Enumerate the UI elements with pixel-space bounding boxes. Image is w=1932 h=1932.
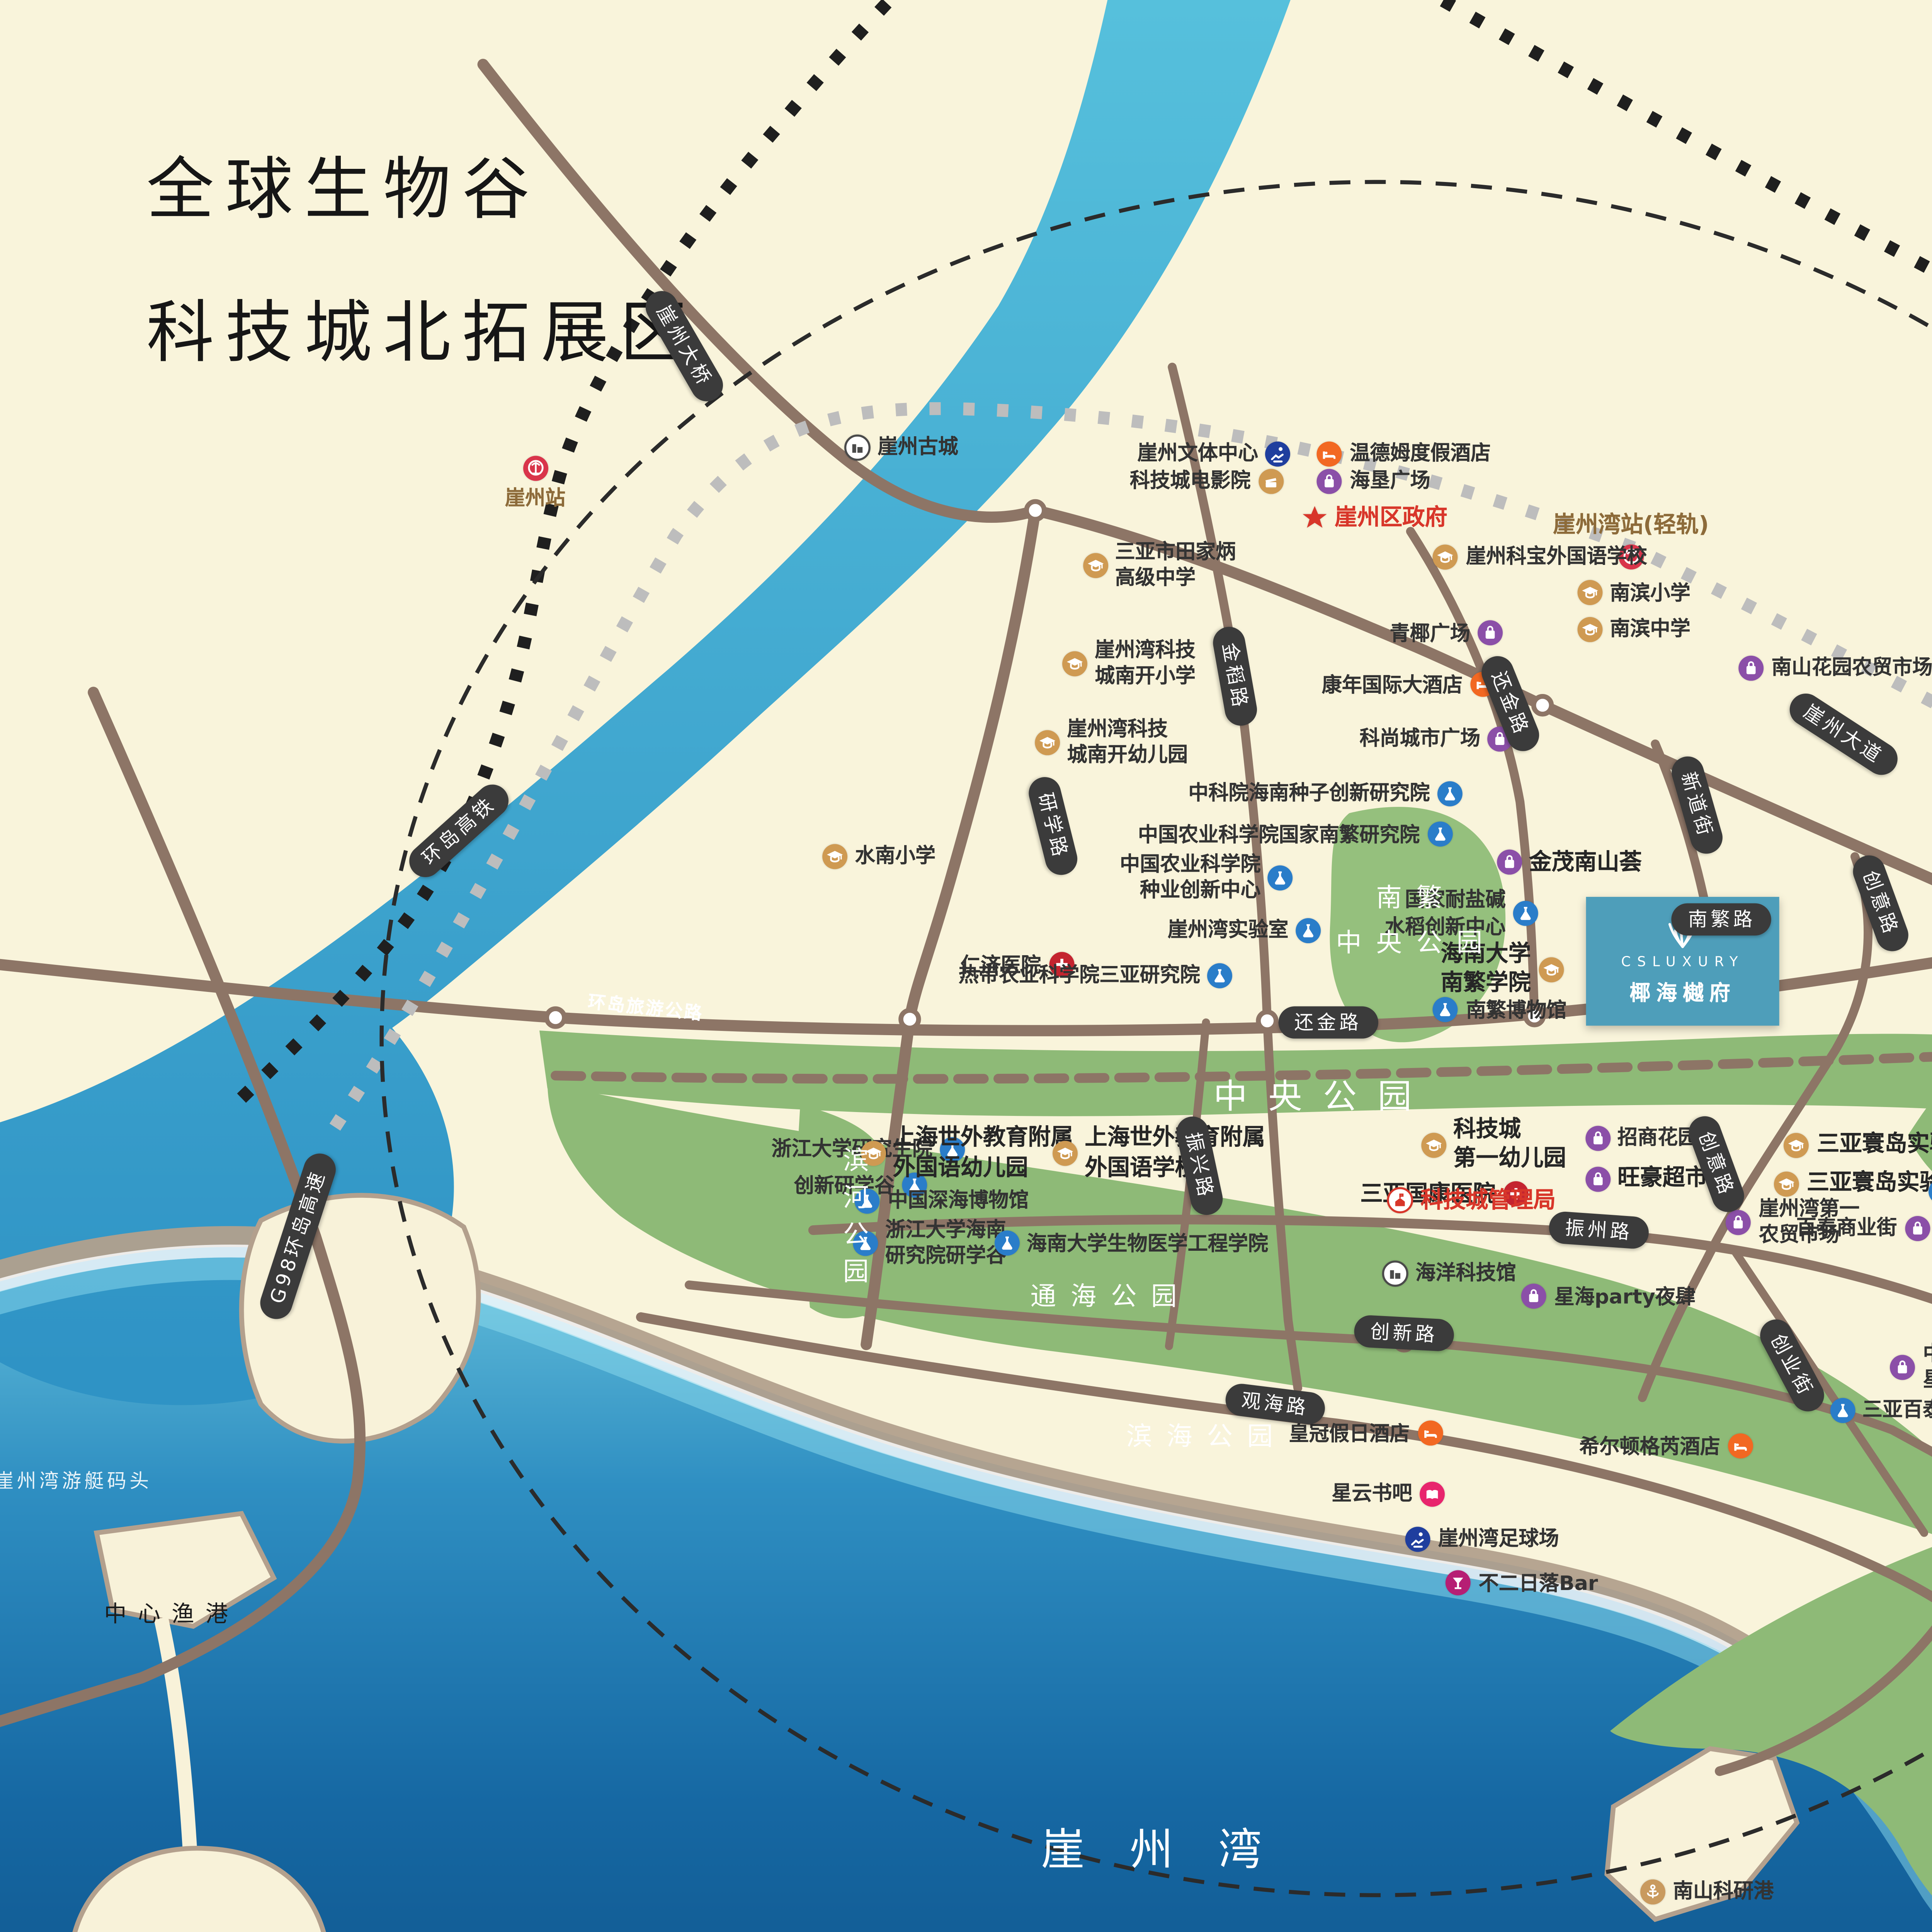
school-icon <box>1576 579 1604 607</box>
film-icon <box>1257 468 1284 495</box>
area-label: 崖州湾游艇码头 <box>0 1464 152 1497</box>
poi-label: 崖州站 <box>505 486 565 512</box>
poi-label: 崖州湾实验室 <box>1168 918 1289 944</box>
landmark-icon <box>1382 1260 1409 1287</box>
school-icon <box>1033 729 1061 756</box>
poi-school: 三亚市田家炳高级中学 <box>1081 539 1236 591</box>
poi-label: 中科院海南种子创新研究院 <box>1188 781 1430 807</box>
poi-sport: 崖州文体中心 <box>1138 440 1292 468</box>
poi-label: 崖州古城 <box>878 434 958 461</box>
poi-landmark: 海洋科技馆 <box>1382 1260 1516 1287</box>
poi-label: 崖州区政府 <box>1335 503 1447 532</box>
bag-icon <box>1738 654 1765 681</box>
poi-bag: 科尚城市广场 <box>1360 724 1514 752</box>
poi-flask: 三亚百泰生物科技有限公司 <box>1828 1396 1932 1424</box>
poi-sport: 崖州湾足球场 <box>1405 1525 1559 1552</box>
poi-school: 南滨中学 <box>1576 616 1690 643</box>
poi-label: 南滨中学 <box>1610 616 1690 642</box>
poi-bag: 中影银龙星悦影城 <box>1889 1341 1932 1393</box>
poi-school: 三亚寰岛实验中学 <box>1783 1130 1932 1160</box>
poi-label: 三亚寰岛实验中学 <box>1817 1130 1932 1160</box>
poi-label: 三亚市田家炳高级中学 <box>1115 539 1236 591</box>
title-line1: 全球生物谷 <box>146 120 699 262</box>
poi-hotel: 希尔顿格芮酒店 <box>1579 1433 1754 1460</box>
poi-hotel: 皇冠假日酒店 <box>1289 1420 1444 1447</box>
poi-bag: 星海party夜肆 <box>1520 1283 1696 1311</box>
poi-hotel: 康年国际大酒店 <box>1322 671 1497 699</box>
poi-label: 水南小学 <box>855 843 935 869</box>
school-icon <box>1576 616 1604 643</box>
poi-school: 崖州湾科技城南开小学 <box>1061 637 1196 689</box>
area-label: 中央公园 <box>1213 1069 1432 1127</box>
school-icon <box>1783 1131 1811 1158</box>
hotel-icon <box>1416 1420 1444 1447</box>
school-icon <box>1773 1170 1801 1197</box>
poi-rail: 崖州站 <box>505 455 565 512</box>
sport-icon <box>1265 440 1292 468</box>
project-brand: CSLUXURY <box>1621 955 1745 971</box>
poi-label: 皇冠假日酒店 <box>1289 1421 1410 1447</box>
poi-label: 康年国际大酒店 <box>1322 672 1463 698</box>
gov-icon <box>1387 1187 1414 1214</box>
poi-school: 水南小学 <box>821 842 935 870</box>
poi-flask: 崖州湾实验室 <box>1168 917 1322 945</box>
poi-label: 崖州湾科技城南开幼儿园 <box>1067 716 1188 769</box>
poi-label: 温德姆度假酒店 <box>1350 440 1491 467</box>
poi-label: 崖州科宝外国语学校 <box>1466 543 1647 570</box>
poi-label: 金茂南山荟 <box>1529 848 1642 877</box>
flask-icon <box>1432 997 1459 1024</box>
poi-label: 百泰商业街 <box>1796 1215 1897 1242</box>
poi-label: 星云书吧 <box>1332 1481 1412 1507</box>
poi-label: 海南大学生物医学工程学院 <box>1027 1230 1268 1257</box>
school-icon <box>1081 551 1109 579</box>
poi-flask: 深海整备产业园 <box>1927 1178 1932 1206</box>
poi-label: 青椰广场 <box>1390 620 1470 646</box>
bag-icon <box>1477 620 1504 647</box>
road-label: 还金路 <box>1278 1007 1378 1039</box>
flask-icon <box>1267 864 1294 891</box>
hotel-icon <box>1316 440 1344 468</box>
poi-label: 崖州湾科技城南开小学 <box>1095 637 1196 689</box>
poi-bag: 金茂南山荟 <box>1495 848 1642 877</box>
poi-label: 科技城管理局 <box>1420 1186 1556 1215</box>
poi-label: 上海世外教育附属外国语幼儿园 <box>893 1124 1073 1183</box>
poi-label: 科技城第一幼儿园 <box>1453 1116 1566 1174</box>
poi-label: 希尔顿格芮酒店 <box>1579 1434 1720 1460</box>
flask-icon <box>1828 1396 1856 1424</box>
area-label: 通海公园 <box>1031 1275 1192 1318</box>
bag-icon <box>1889 1354 1917 1381</box>
school-icon <box>821 842 849 870</box>
bag-icon <box>1903 1214 1931 1242</box>
poi-label: 不二日落Bar <box>1479 1570 1598 1597</box>
poi-hotel: 温德姆度假酒店 <box>1316 440 1491 468</box>
poi-label: 热带农业科学院三亚研究院 <box>959 963 1200 989</box>
poi-bag: 南山花园农贸市场 <box>1738 654 1932 681</box>
poi-label: 中国深海博物馆 <box>888 1187 1029 1214</box>
road-label: 南繁路 <box>1672 904 1772 936</box>
school-icon <box>1420 1131 1447 1158</box>
flask-icon <box>993 1230 1020 1257</box>
bag-icon <box>1725 1208 1752 1236</box>
poi-label: 三亚百泰生物科技有限公司 <box>1862 1397 1932 1423</box>
map-canvas: 全球生物谷 科技城北拓展区 CSLUXURY 椰海樾府 崖州古城崖州文体中心温德… <box>0 0 1932 1932</box>
flask-icon <box>1512 900 1539 927</box>
anchor-icon <box>1639 1878 1667 1905</box>
landmark-icon <box>844 434 871 461</box>
poi-label: 中国农业科学院国家南繁研究院 <box>1138 821 1420 848</box>
poi-flask: 中国深海博物馆 <box>854 1187 1029 1214</box>
school-icon <box>1537 956 1565 983</box>
poi-anchor: 南山科研港 <box>1639 1878 1774 1905</box>
poi-label: 崖州湾站(轻轨) <box>1553 512 1709 541</box>
area-label: 南繁 中央公园 <box>1336 876 1497 964</box>
poi-school: 科技城第一幼儿园 <box>1420 1116 1566 1174</box>
school-icon <box>1432 543 1459 570</box>
project-name: 椰海樾府 <box>1629 976 1736 1007</box>
poi-landmark: 崖州古城 <box>844 434 958 461</box>
poi-flask: 中国农业科学院国家南繁研究院 <box>1138 821 1454 848</box>
poi-book: 星云书吧 <box>1332 1480 1446 1507</box>
poi-label: 海洋科技馆 <box>1415 1260 1516 1286</box>
poi-label: 旺豪超市 <box>1617 1165 1708 1194</box>
poi-film: 科技城电影院 <box>1130 468 1284 495</box>
rail-icon <box>522 455 549 483</box>
poi-label: 上海世外教育附属外国语学校 <box>1085 1124 1265 1183</box>
poi-school: 三亚寰岛实验小学 <box>1773 1169 1932 1198</box>
bag-icon <box>1583 1125 1611 1152</box>
book-icon <box>1418 1480 1446 1507</box>
poi-label: 海垦广场 <box>1350 468 1430 495</box>
poi-label: 南山花园农贸市场 <box>1772 655 1932 681</box>
area-label: 滨河公园 <box>832 1146 875 1294</box>
star-icon <box>1301 504 1328 532</box>
poi-bag: 百泰商业街 <box>1796 1214 1931 1242</box>
area-label: 崖州湾 <box>1041 1814 1307 1888</box>
poi-label: 南滨小学 <box>1610 580 1690 606</box>
title-line2: 科技城北拓展区 <box>146 262 699 404</box>
poi-label: 崖州湾足球场 <box>1438 1526 1559 1552</box>
bag-icon <box>1495 849 1523 876</box>
poi-label: 南山科研港 <box>1673 1879 1774 1905</box>
poi-flask: 中科院海南种子创新研究院 <box>1188 780 1464 808</box>
poi-label: 南繁博物馆 <box>1466 997 1567 1023</box>
bag-icon <box>1583 1165 1611 1193</box>
road-label: 创新路 <box>1353 1315 1454 1352</box>
plain-label: 中心渔港 <box>104 1597 239 1629</box>
sport-icon <box>1405 1525 1432 1552</box>
poi-label: 三亚寰岛实验小学 <box>1807 1169 1932 1198</box>
bag-icon <box>1316 468 1344 495</box>
flask-icon <box>1207 962 1234 990</box>
flask-icon <box>1927 1178 1932 1206</box>
poi-school: 崖州湾科技城南开幼儿园 <box>1033 716 1188 769</box>
poi-label: 中国农业科学院种业创新中心 <box>1120 851 1261 903</box>
area-label: 滨海公园 <box>1126 1414 1287 1458</box>
poi-star: 崖州区政府 <box>1301 503 1447 532</box>
poi-label: 星海party夜肆 <box>1554 1284 1696 1310</box>
flask-icon <box>1426 821 1454 848</box>
poi-label: 浙江大学海南研究院研学谷 <box>885 1217 1006 1269</box>
flask-icon <box>1436 780 1464 808</box>
school-icon <box>1061 650 1088 677</box>
poi-label: 科尚城市广场 <box>1360 725 1481 752</box>
poi-label: 科技城电影院 <box>1130 468 1251 495</box>
poi-label: 中影银龙星悦影城 <box>1923 1341 1932 1393</box>
bag-icon <box>1520 1283 1548 1311</box>
poi-school: 上海世外教育附属外国语学校 <box>1051 1124 1265 1183</box>
hotel-icon <box>1727 1433 1754 1460</box>
poi-school: 崖州科宝外国语学校 <box>1432 543 1647 570</box>
poi-school: 上海世外教育附属外国语幼儿园 <box>859 1124 1073 1183</box>
poi-gov: 科技城管理局 <box>1387 1186 1556 1215</box>
poi-flask: 热带农业科学院三亚研究院 <box>959 962 1234 990</box>
poi-bag: 海垦广场 <box>1316 468 1430 495</box>
flask-icon <box>1295 917 1322 945</box>
poi-bag: 旺豪超市 <box>1583 1165 1708 1194</box>
poi-school: 南滨小学 <box>1576 579 1690 607</box>
map-title: 全球生物谷 科技城北拓展区 <box>146 120 699 404</box>
poi-flask: 南繁博物馆 <box>1432 997 1566 1024</box>
school-icon <box>1051 1140 1078 1167</box>
poi-label: 崖州文体中心 <box>1138 440 1259 467</box>
poi-flask: 中国农业科学院种业创新中心 <box>1120 851 1294 903</box>
poi-flask: 海南大学生物医学工程学院 <box>993 1230 1269 1257</box>
poi-bag: 青椰广场 <box>1390 620 1504 647</box>
cocktail-icon <box>1445 1570 1472 1597</box>
poi-cocktail: 不二日落Bar <box>1445 1570 1598 1597</box>
